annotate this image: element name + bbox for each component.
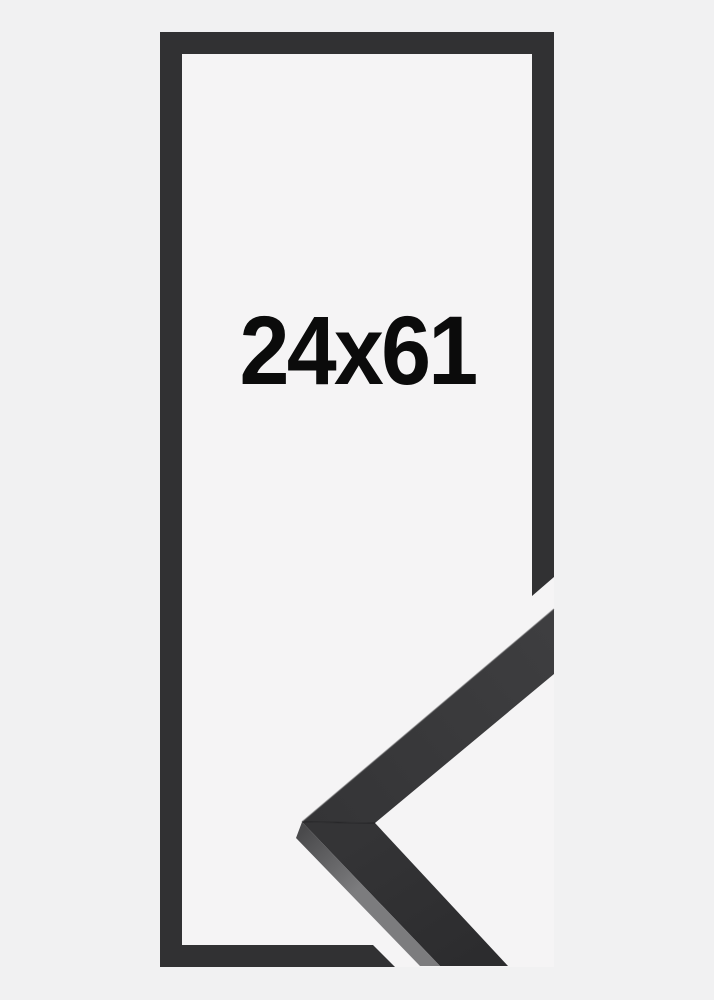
frame-size-graphic: 24x61: [0, 0, 714, 1000]
frame-right-bar: [532, 32, 554, 596]
corner-sample-miter-seam: [302, 822, 375, 823]
product-image: 24x61: [0, 0, 714, 1000]
frame-left-bar: [160, 32, 182, 967]
frame-top-bar: [160, 32, 554, 54]
frame-bottom-bar: [160, 945, 395, 967]
size-label: 24x61: [240, 296, 477, 405]
